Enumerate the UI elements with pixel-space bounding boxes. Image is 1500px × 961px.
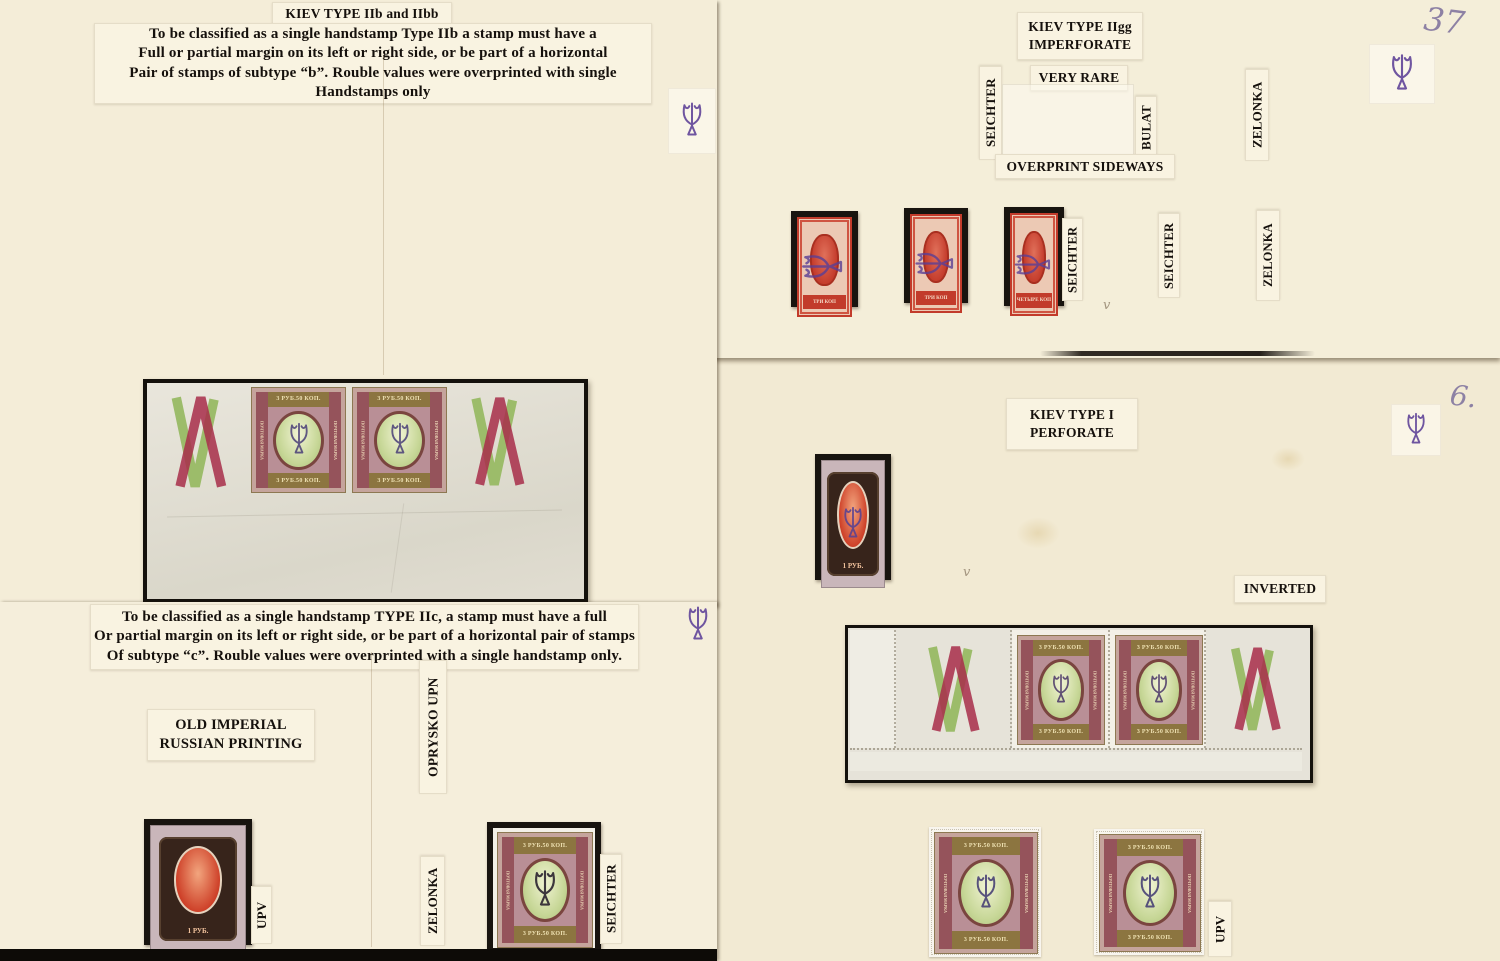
- stamp-1rub-imperial-mount: 1 РУБ.: [144, 819, 252, 945]
- perforated-block-with-v-marks: 3 РУБ.50 КОП. 3 РУБ.50 КОП. ПОЧТОВАЯ МАР…: [845, 625, 1313, 783]
- v-mark-icon: [1224, 638, 1286, 740]
- stamp-side-band: ПОЧТОВАЯ МАРКА: [1020, 837, 1033, 949]
- stamp-350-single-right: 3 РУБ.50 КОП. 3 РУБ.50 КОП. ПОЧТОВАЯ МАР…: [1094, 829, 1204, 955]
- scanned-album-photo: { "iib": { "title": "KIEV TYPE IIb and I…: [0, 0, 1500, 961]
- zelonka-label-row: ZELONKA: [1256, 210, 1280, 301]
- page-edge-shadow: [1040, 351, 1315, 356]
- stamp-side-band: ПОЧТОВАЯ МАРКА: [1119, 640, 1130, 740]
- page-number-handwritten: 37: [1422, 0, 1467, 42]
- stamp-3kop-sideways-trident: ТРИ КОП: [910, 214, 962, 313]
- stamp-side-band: ПОЧТОВАЯ МАРКА: [357, 392, 369, 489]
- stamp-value: 1 РУБ.: [841, 556, 866, 576]
- v-control-mark: [161, 391, 235, 493]
- stamp-center: [1022, 231, 1047, 284]
- seichter-label-row-b: SEICHTER: [1158, 213, 1180, 298]
- v-control-mark: [1204, 630, 1304, 748]
- trident-handstamp-box: [678, 596, 717, 654]
- oprysko-upn-label: OPRYSKO UPN: [419, 660, 447, 794]
- stamp-side-band: ПОЧТОВАЯ МАРКА: [1187, 640, 1198, 740]
- page-fold-line: [371, 652, 372, 947]
- glue-stain: [1016, 517, 1060, 549]
- kiev-type-2gg-title-label: KIEV TYPE IIgg IMPERFORATE: [1017, 12, 1143, 60]
- v-mark-icon: [464, 392, 530, 491]
- stamp-value: ТРИ КОП: [803, 295, 846, 309]
- old-imperial-label: OLD IMPERIAL RUSSIAN PRINTING: [147, 709, 315, 761]
- stamp-side-band: ПОЧТОВАЯ МАРКА: [502, 837, 514, 943]
- stamp-1rub-kiev1-mount: 1 РУБ.: [815, 454, 891, 580]
- stamp-side-band: ПОЧТОВАЯ МАРКА: [430, 392, 442, 489]
- trident-handstamp-box: [1391, 404, 1441, 456]
- kiev-type-1-title-label: KIEV TYPE I PERFORATE: [1006, 398, 1138, 450]
- type-2c-description-label: To be classified as a single handstamp T…: [90, 604, 639, 670]
- page-fold-line: [383, 55, 384, 375]
- album-page-kiev-type-2gg: KIEV TYPE IIgg IMPERFORATE VERY RARE SEI…: [705, 0, 1500, 358]
- stamp-350-block-right: 3 РУБ.50 КОП. 3 РУБ.50 КОП. ПОЧТОВАЯ МАР…: [1108, 630, 1206, 748]
- stamp-side-band: ПОЧТОВАЯ МАРКА: [1104, 839, 1117, 947]
- sheet-margin-tab: [850, 630, 896, 748]
- stamp-center-oval: [174, 846, 223, 914]
- stamp-3kop-mount: ТРИ КОП: [791, 211, 858, 307]
- inverted-label: INVERTED: [1234, 575, 1326, 603]
- stamp-value: ЧЕТЫРЕ КОП: [1016, 293, 1053, 308]
- zelonka-label-upper: ZELONKA: [1245, 69, 1269, 161]
- sheet-crease: [167, 510, 562, 518]
- sheet-bottom-margin: [850, 752, 1302, 771]
- stamp-value: 1 РУБ.: [179, 921, 217, 941]
- v-control-mark: [461, 391, 533, 492]
- perforation-line: [850, 748, 1302, 750]
- page-number-handwritten: 6.: [1448, 378, 1479, 414]
- upv-label: UPV: [251, 886, 272, 944]
- stamp-center: [923, 231, 950, 282]
- stamp-side-band: ПОЧТОВАЯ МАРКА: [329, 392, 341, 489]
- stamp-4kop-sideways-trident: ЧЕТЫРЕ КОП: [1010, 213, 1058, 316]
- stamp-side-band: ПОЧТОВАЯ МАРКА: [1089, 640, 1100, 740]
- trident-handstamp-icon: [1403, 409, 1429, 451]
- stamp-side-band: ПОЧТОВАЯ МАРКА: [1021, 640, 1032, 740]
- stamp-350-black-trident-mount: 3 РУБ.50 КОП. 3 РУБ.50 КОП. ПОЧТОВАЯ МАР…: [487, 822, 601, 954]
- seichter-label-row-a: SEICHTER: [1062, 218, 1083, 301]
- stamp-center-oval: [837, 481, 869, 549]
- kiev-type-2b-title-label: KIEV TYPE IIb and IIbb: [272, 2, 452, 25]
- stamp-1rub-imperial: 1 РУБ.: [150, 825, 246, 953]
- stamp-value: ТРИ КОП: [916, 291, 956, 305]
- upv-label: UPV: [1208, 901, 1232, 957]
- album-page-kiev-type-2b: KIEV TYPE IIb and IIbb To be classified …: [0, 0, 717, 606]
- stamp-3kop-mount: ТРИ КОП: [904, 208, 968, 303]
- stamp-side-band: ПОЧТОВАЯ МАРКА: [576, 837, 588, 943]
- album-page-kiev-type-1: KIEV TYPE I PERFORATE 6. 1 РУБ. INVERTED…: [716, 352, 1500, 961]
- trident-handstamp-box: [1369, 44, 1435, 104]
- seichter-label: SEICHTER: [600, 854, 622, 944]
- trident-handstamp-icon: [1387, 49, 1417, 99]
- pencil-check: v: [963, 565, 970, 580]
- v-control-mark: [896, 630, 1012, 748]
- empty-stamp-mount: [1002, 84, 1134, 158]
- trident-handstamp-icon: [684, 600, 712, 650]
- trident-handstamp-icon: [678, 96, 706, 146]
- pencil-check: v: [1103, 298, 1110, 313]
- glue-stain: [1271, 447, 1305, 471]
- stamp-4kop-mount: ЧЕТЫРЕ КОП: [1004, 207, 1064, 306]
- album-page-type-2c: To be classified as a single handstamp T…: [0, 602, 717, 961]
- bulat-label: BULAT: [1135, 96, 1157, 160]
- stamp-1rub-trident: 1 РУБ.: [821, 460, 885, 588]
- zelonka-label: ZELONKA: [420, 856, 445, 946]
- stamp-350-block-left: 3 РУБ.50 КОП. 3 РУБ.50 КОП. ПОЧТОВАЯ МАР…: [1012, 630, 1108, 748]
- stamp-350-single-left: 3 РУБ.50 КОП. 3 РУБ.50 КОП. ПОЧТОВАЯ МАР…: [929, 827, 1041, 957]
- stamp-side-band: ПОЧТОВАЯ МАРКА: [939, 837, 952, 949]
- stamp-3kop-sideways-trident: ТРИ КОП: [797, 217, 852, 317]
- v-mark-icon: [921, 637, 985, 741]
- sheet-crease: [391, 503, 405, 592]
- stamp-side-band: ПОЧТОВАЯ МАРКА: [1183, 839, 1196, 947]
- stamp-350-imperf-right: 3 РУБ.50 КОП. 3 РУБ.50 КОП. ПОЧТОВАЯ МАР…: [352, 387, 445, 491]
- kiev-type-2b-description-label: To be classified as a single handstamp T…: [94, 23, 652, 104]
- stamp-side-band: ПОЧТОВАЯ МАРКА: [256, 392, 268, 489]
- trident-handstamp-box: [668, 88, 716, 154]
- imperforate-block-with-v-marks: 3 РУБ.50 КОП. 3 РУБ.50 КОП. ПОЧТОВАЯ МАР…: [143, 379, 588, 603]
- overprint-sideways-label: OVERPRINT SIDEWAYS: [995, 154, 1175, 179]
- seichter-label-upper-left: SEICHTER: [979, 66, 1002, 160]
- page-bottom-edge: [0, 949, 717, 961]
- stamp-350-imperf-left: 3 РУБ.50 КОП. 3 РУБ.50 КОП. ПОЧТОВАЯ МАР…: [251, 387, 344, 491]
- v-mark-icon: [164, 392, 232, 492]
- stamp-center: [810, 234, 839, 286]
